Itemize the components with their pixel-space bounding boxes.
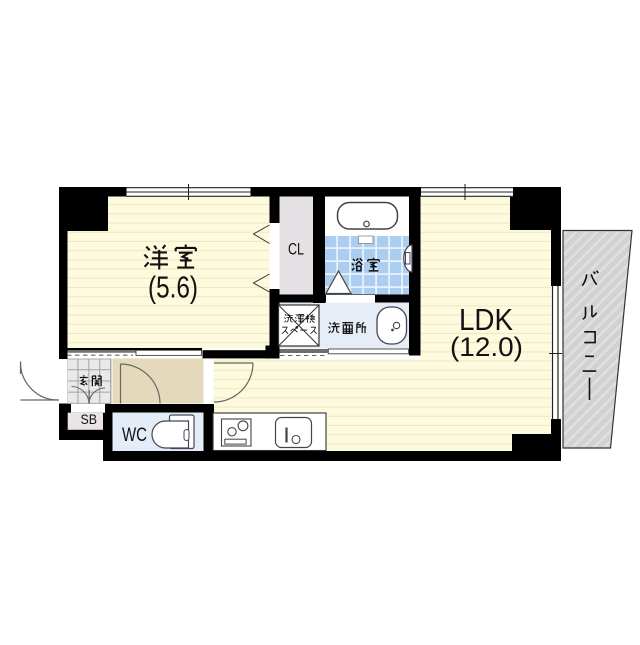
svg-text:SB: SB — [81, 411, 98, 427]
svg-text:WC: WC — [122, 425, 147, 446]
svg-text:(5.6): (5.6) — [148, 270, 198, 305]
svg-text:(12.0): (12.0) — [450, 332, 523, 362]
svg-text:CL: CL — [288, 240, 304, 259]
